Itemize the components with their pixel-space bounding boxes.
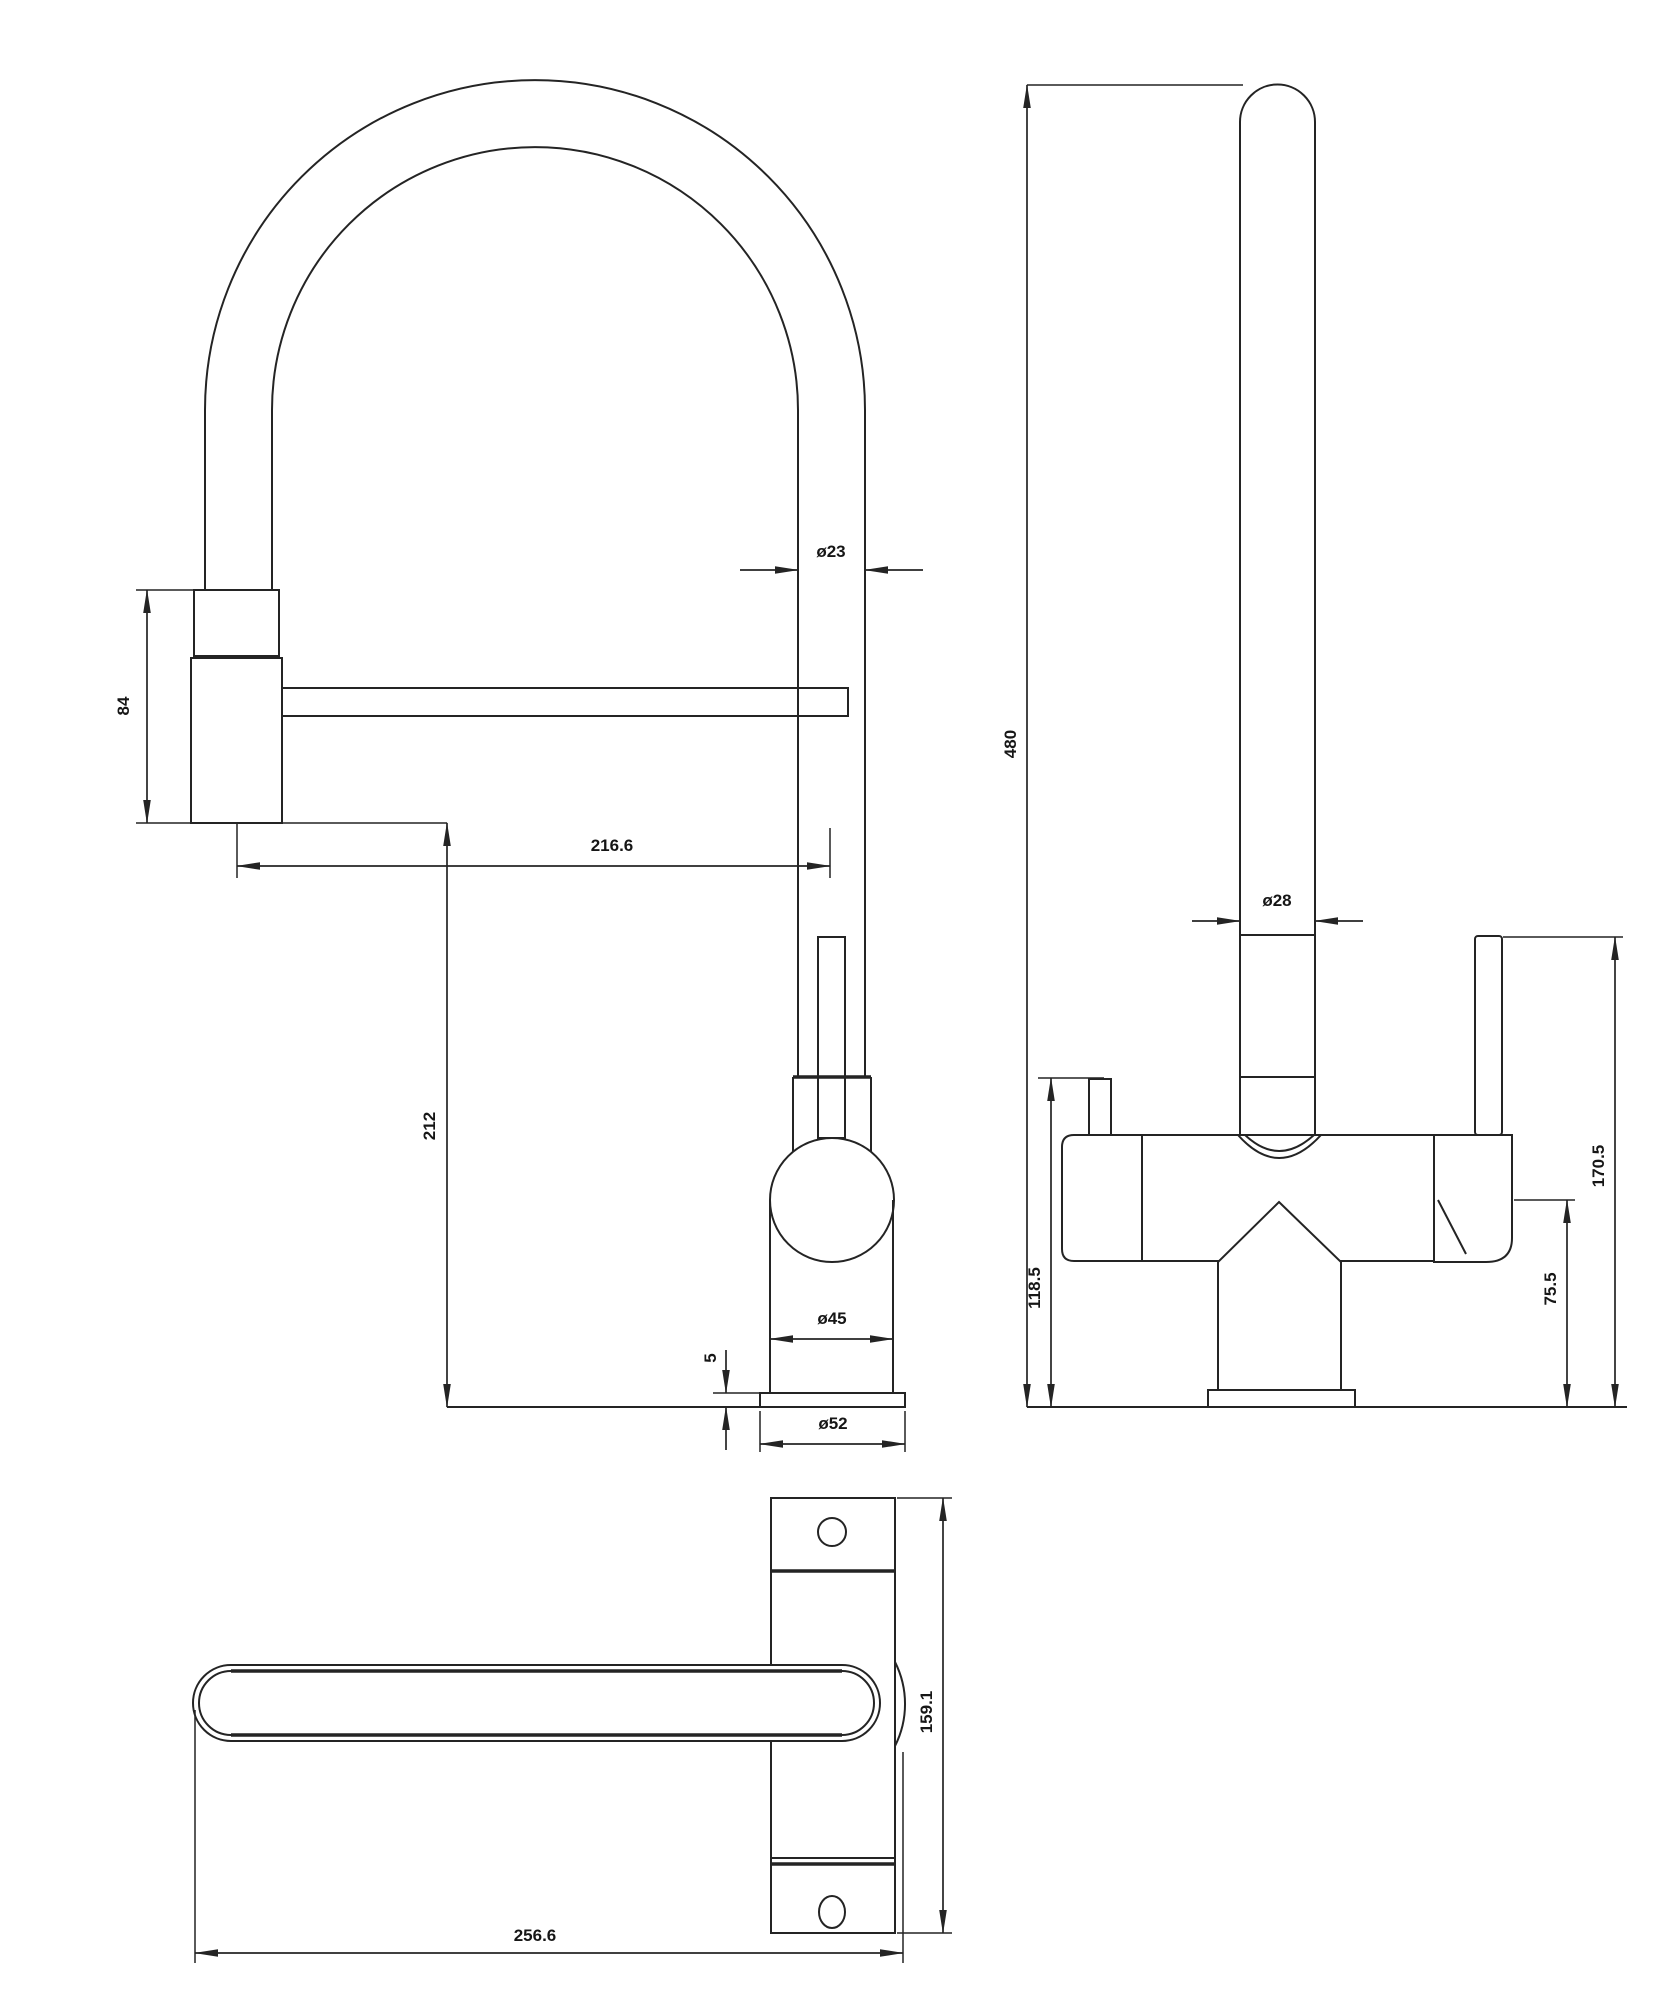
riser-lower-tube [793, 1077, 871, 1152]
dim-label-spout-tube-diameter: ø23 [816, 542, 845, 561]
dim-handle-hub-height: 75.5 [1514, 1200, 1575, 1407]
base-flange-front [760, 1393, 905, 1407]
dim-outlet-height: 212 [420, 823, 447, 1407]
spray-bar [258, 688, 848, 716]
base-flange-side [1208, 1390, 1355, 1407]
spray-head-connector [194, 590, 279, 656]
spout-arc-outer [205, 80, 865, 1077]
dim-spout-reach: 216.6 [237, 823, 830, 878]
dim-label-body-height: 118.5 [1025, 1267, 1044, 1309]
dim-base-plate-thickness: 5 [701, 1350, 760, 1450]
handle-lever-front [818, 937, 845, 1138]
body-column-front [770, 1200, 893, 1393]
riser-saddle-arcs [1238, 1135, 1321, 1158]
dim-body-diameter: ø45 [770, 1309, 893, 1339]
spray-head-body [191, 658, 282, 823]
ball-joint-circle [770, 1138, 894, 1262]
dim-label-overall-width: 256.6 [514, 1926, 557, 1945]
dim-spray-head-height: 84 [114, 590, 199, 823]
dim-lever-height: 170.5 [1503, 937, 1623, 1407]
dim-riser-diameter: ø28 [1192, 891, 1363, 921]
dim-label-spout-reach: 216.6 [591, 836, 634, 855]
spout-arc-inner [272, 147, 798, 1077]
spray-bar-top [193, 1665, 880, 1741]
riser-tube-joints [1240, 935, 1315, 1077]
left-lever-side [1089, 1079, 1111, 1135]
riser-tube-side [1240, 85, 1315, 1136]
technical-drawing: ø23 84 216.6 212 ø45 5 [0, 0, 1657, 2000]
faucet-drawing-canvas: ø23 84 216.6 212 ø45 5 [0, 0, 1657, 2000]
dim-spout-tube-diameter: ø23 [740, 542, 923, 570]
body-bulge-arc [895, 1662, 905, 1746]
body-column-side [1218, 1202, 1341, 1390]
dim-label-overall-depth: 159.1 [917, 1691, 936, 1734]
dim-label-handle-hub-height: 75.5 [1541, 1272, 1560, 1305]
dim-label-lever-height: 170.5 [1589, 1145, 1608, 1188]
dim-label-base-plate-diameter: ø52 [818, 1414, 847, 1433]
dim-label-body-diameter: ø45 [817, 1309, 846, 1328]
dim-overall-height: 480 [1001, 85, 1243, 1407]
side-view: 480 ø28 118.5 170.5 75.5 [1001, 85, 1627, 1408]
dim-label-outlet-height: 212 [420, 1112, 439, 1140]
dim-label-riser-diameter: ø28 [1262, 891, 1291, 910]
dim-label-base-plate-thickness: 5 [701, 1353, 720, 1362]
handle-hub-side [1434, 1135, 1512, 1262]
top-view: 256.6 159.1 [193, 1498, 952, 1963]
dim-label-spray-head-height: 84 [114, 696, 133, 715]
handle-lever-side [1475, 936, 1502, 1135]
dim-base-plate-diameter: ø52 [760, 1411, 905, 1452]
dim-body-height: 118.5 [1025, 1078, 1104, 1407]
front-view: ø23 84 216.6 212 ø45 5 [114, 80, 923, 1452]
dim-label-overall-height: 480 [1001, 730, 1020, 758]
